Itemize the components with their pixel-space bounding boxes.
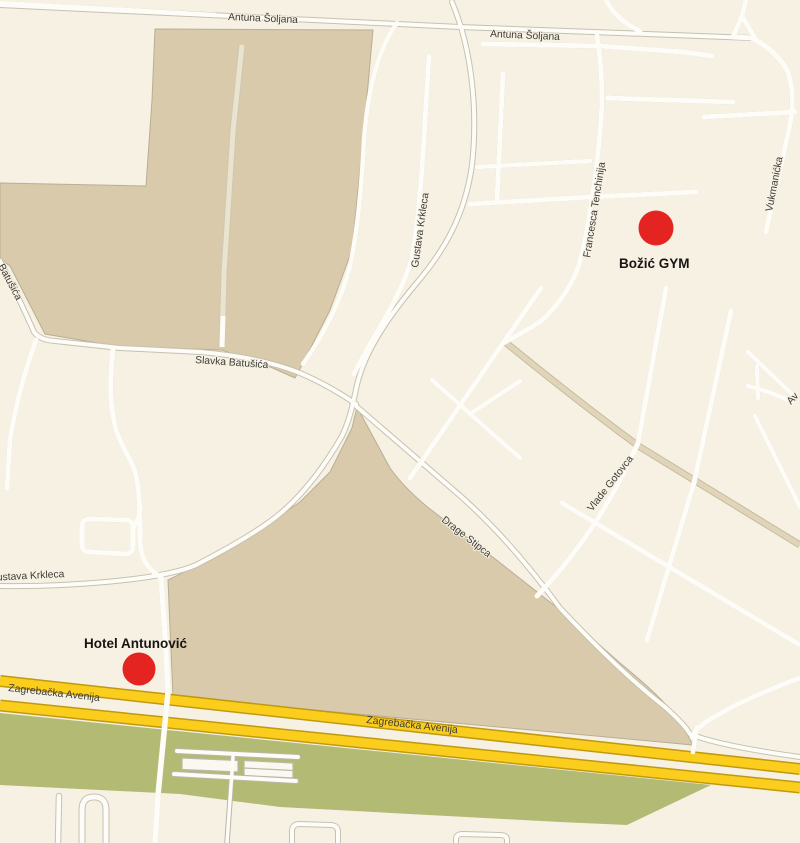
svg-text:Božić GYM: Božić GYM [619,256,690,271]
svg-text:Hotel Antunović: Hotel Antunović [84,636,187,651]
